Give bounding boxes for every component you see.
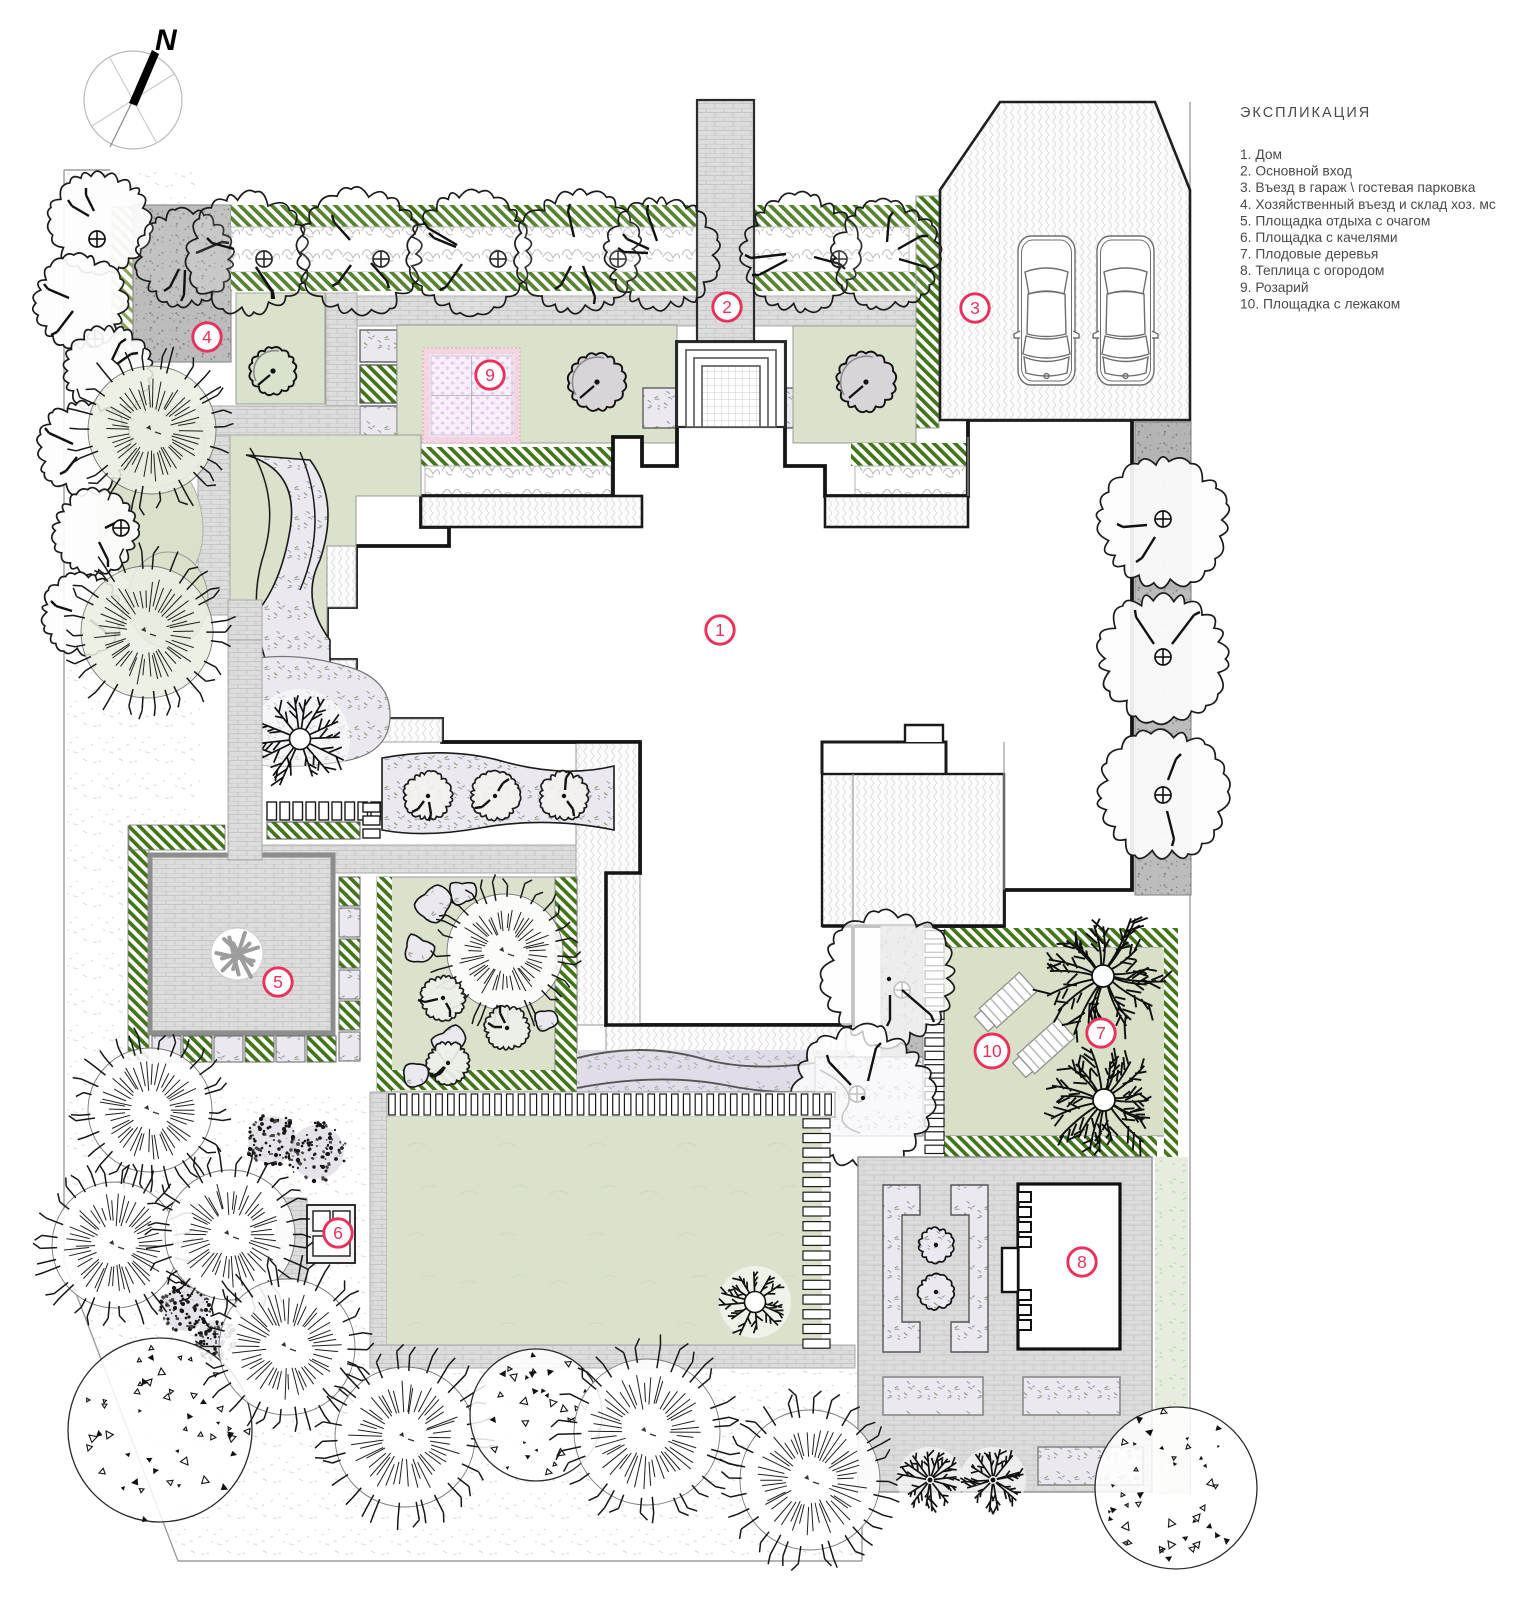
svg-text:9. Розарий: 9. Розарий (1240, 280, 1309, 295)
svg-text:3. Въезд в гараж \ гостевая па: 3. Въезд в гараж \ гостевая парковка (1240, 180, 1476, 195)
svg-text:4. Хозяйственный въезд и склад: 4. Хозяйственный въезд и склад хоз. мс (1240, 197, 1496, 212)
svg-text:2: 2 (722, 297, 732, 317)
svg-text:2. Основной вход: 2. Основной вход (1240, 164, 1352, 179)
svg-text:7: 7 (1096, 1023, 1106, 1043)
svg-text:10. Площадка с лежаком: 10. Площадка с лежаком (1240, 296, 1400, 311)
svg-text:N: N (155, 24, 178, 57)
svg-text:8. Теплица с огородом: 8. Теплица с огородом (1240, 263, 1384, 278)
svg-text:9: 9 (485, 365, 495, 385)
svg-text:6: 6 (333, 1223, 343, 1243)
svg-text:5. Площадка отдыха с очагом: 5. Площадка отдыха с очагом (1240, 213, 1430, 228)
svg-text:6. Площадка с качелями: 6. Площадка с качелями (1240, 230, 1398, 245)
svg-text:3: 3 (970, 298, 980, 318)
svg-text:1: 1 (715, 620, 725, 640)
svg-text:10: 10 (982, 1041, 1002, 1061)
svg-text:ЭКСПЛИКАЦИЯ: ЭКСПЛИКАЦИЯ (1240, 105, 1371, 121)
svg-text:8: 8 (1077, 1252, 1087, 1272)
svg-text:5: 5 (273, 972, 283, 992)
svg-text:1. Дом: 1. Дом (1240, 147, 1282, 162)
svg-text:4: 4 (202, 327, 212, 347)
svg-text:7. Плодовые деревья: 7. Плодовые деревья (1240, 247, 1378, 262)
